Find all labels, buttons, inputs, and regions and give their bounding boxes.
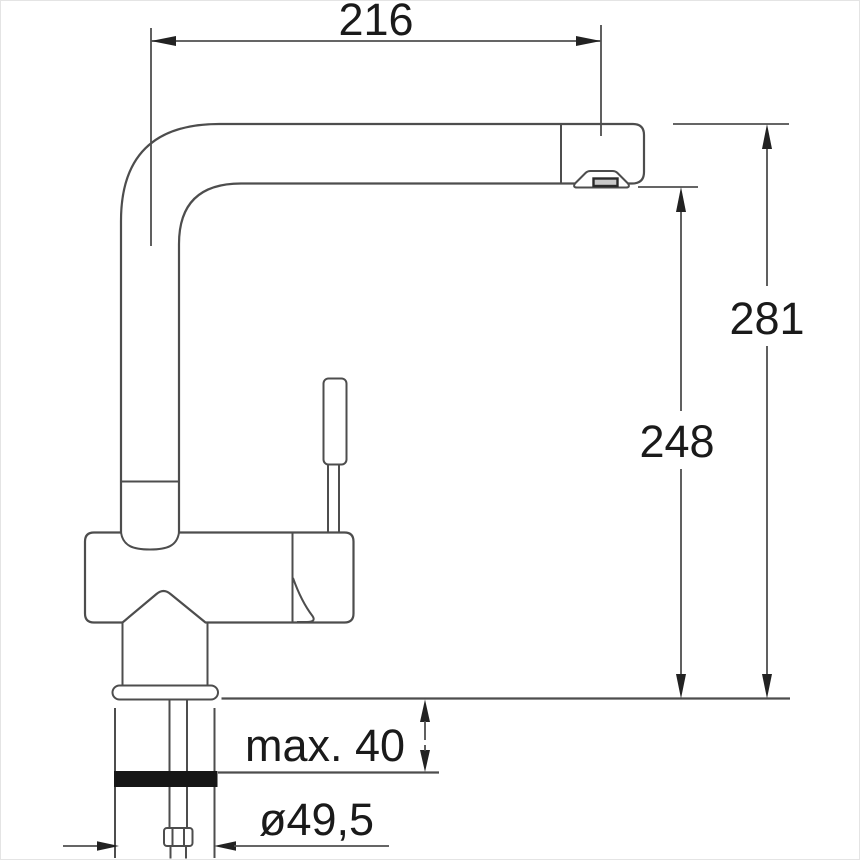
- faucet-shank: [123, 623, 208, 686]
- dim-248-label: 248: [639, 416, 714, 467]
- faucet-dimension-drawing: 216 281 248 max. 40: [1, 1, 860, 861]
- dim-dia-arrow-right: [214, 841, 236, 851]
- handle-stem: [328, 465, 339, 534]
- base-flange: [113, 686, 219, 700]
- dim-max40-label: max. 40: [245, 720, 405, 771]
- dim-216-label: 216: [338, 1, 413, 45]
- faucet-spout-arm: [121, 124, 644, 533]
- dim-216-arrow-right: [576, 36, 601, 46]
- threaded-stud: [170, 700, 188, 829]
- faucet-body: [85, 533, 354, 623]
- dimension-hole-diameter: ø49,5: [63, 794, 389, 851]
- faucet-outline: [85, 124, 644, 686]
- dim-max40-arrow-down: [420, 750, 430, 772]
- aerator-screen: [594, 179, 618, 187]
- riser-body-junction-arc: [121, 533, 179, 550]
- handle-grip: [324, 379, 347, 465]
- mounting-nut: [164, 828, 193, 846]
- dim-281-arrow-down: [762, 674, 772, 699]
- dim-216-arrow-left: [151, 36, 176, 46]
- dim-248-arrow-down: [676, 674, 686, 699]
- dim-248-arrow-up: [676, 187, 686, 212]
- stud-end: [171, 846, 187, 859]
- dimension-outlet-height: 248: [638, 187, 715, 699]
- dim-281-label: 281: [729, 293, 804, 344]
- technical-drawing-page: 216 281 248 max. 40: [0, 0, 860, 860]
- dim-281-arrow-up: [762, 124, 772, 149]
- aerator: [574, 171, 629, 188]
- dim-max40-arrow-up: [420, 700, 430, 723]
- dimension-mounting-thickness: max. 40: [245, 700, 430, 773]
- mounting-hardware: [113, 686, 219, 859]
- seal-washer: [114, 771, 218, 787]
- dimension-overall-height: 281: [673, 124, 805, 699]
- nut-body: [164, 828, 193, 846]
- faucet-handle: [324, 379, 347, 534]
- dim-dia-label: ø49,5: [259, 794, 374, 845]
- swivel-joint-curve: [293, 578, 314, 622]
